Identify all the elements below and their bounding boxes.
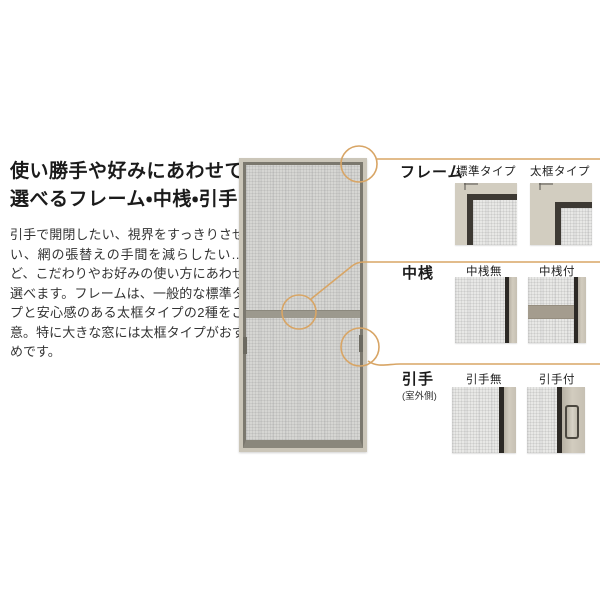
thumbnail-handle-present [527, 387, 585, 453]
mesh-texture [452, 387, 499, 453]
door-middle-rail [246, 310, 360, 318]
mesh-texture [527, 387, 557, 453]
middle-rail-bar [528, 305, 574, 320]
section-body-text: 引手で開閉したい、視界をすっきりさせたい、網の張替えの手間を減らしたい…など、こ… [10, 225, 258, 362]
row-label-handle: 引手 [402, 368, 434, 389]
door-right-handle [359, 335, 363, 352]
adjacent-frame-strip [509, 277, 517, 343]
mesh-texture [455, 277, 505, 343]
adjacent-frame-strip [504, 387, 516, 453]
frame-corner-wide [555, 202, 592, 245]
frame-seam-mark [539, 183, 553, 185]
frame-corner-standard [467, 194, 517, 245]
row-note-outdoor-side: (室外側) [402, 388, 437, 402]
adjacent-frame-strip [578, 277, 586, 343]
pull-handle-shape [565, 405, 578, 439]
screen-door-illustration [239, 158, 367, 452]
heading-line-1: 使い勝手や好みにあわせて [10, 158, 250, 186]
thumbnail-frame-standard [455, 183, 517, 245]
variant-label-wide-frame: 太框タイプ [529, 163, 591, 179]
door-mesh [243, 162, 363, 448]
thumbnail-rail-none [455, 277, 517, 343]
section-heading: 使い勝手や好みにあわせて 選べるフレーム・中桟・引手 [10, 158, 250, 214]
variant-label-no-handle: 引手無 [453, 371, 515, 387]
thumbnail-rail-present [528, 277, 586, 343]
product-feature-panel: 使い勝手や好みにあわせて 選べるフレーム・中桟・引手 引手で開閉したい、視界をす… [0, 0, 600, 600]
variant-label-with-handle: 引手付 [526, 371, 588, 387]
heading-line-2: 選べるフレーム・中桟・引手 [10, 186, 250, 214]
door-left-handle [243, 337, 247, 354]
thumbnail-handle-none [452, 387, 516, 453]
variant-label-standard: 標準タイプ [455, 163, 517, 179]
mesh-texture [561, 208, 592, 245]
row-label-rail: 中桟 [402, 262, 434, 283]
mesh-texture [473, 200, 517, 245]
frame-seam-mark [464, 183, 478, 185]
callout-line-handle [368, 361, 600, 365]
thumbnail-frame-wide [530, 183, 592, 245]
